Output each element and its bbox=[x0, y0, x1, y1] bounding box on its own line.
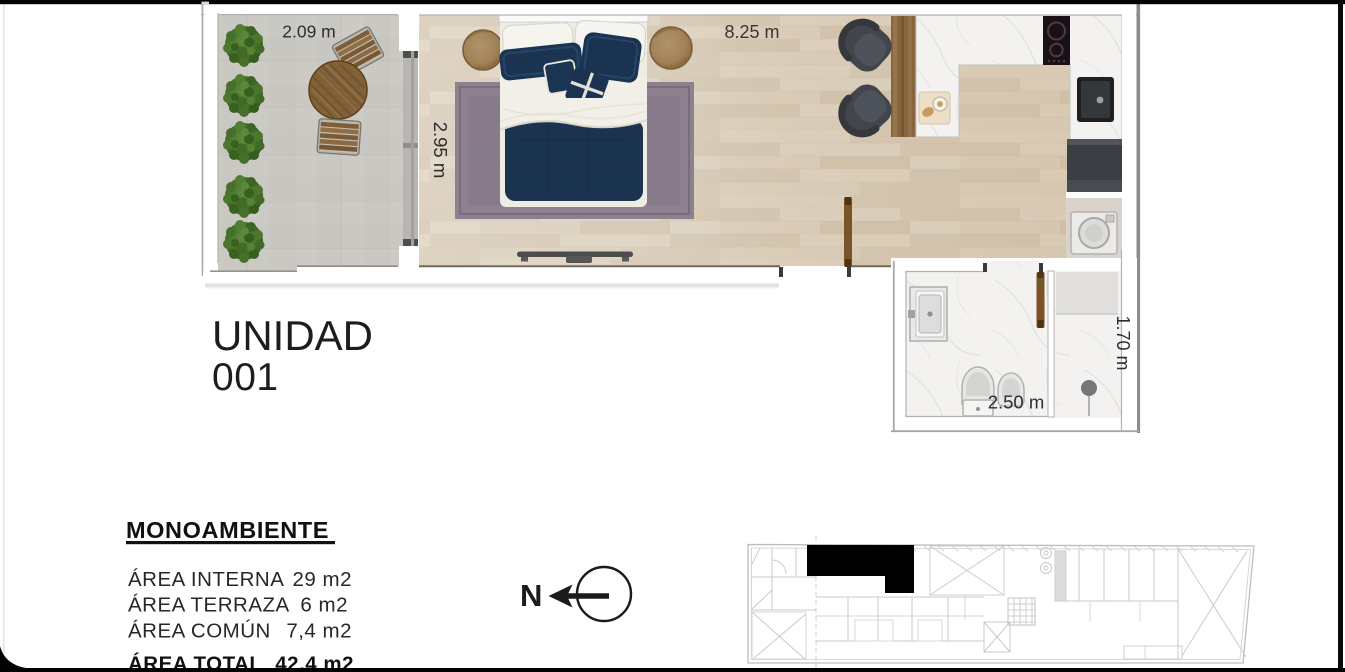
svg-text:8.25 m: 8.25 m bbox=[724, 22, 779, 42]
svg-text:2.95 m: 2.95 m bbox=[430, 122, 451, 179]
svg-text:2.09 m: 2.09 m bbox=[282, 22, 336, 42]
svg-text:ÁREA COMÚN: ÁREA COMÚN bbox=[128, 620, 271, 643]
svg-text:001: 001 bbox=[212, 356, 279, 399]
svg-text:N: N bbox=[520, 578, 542, 613]
svg-text:1.70 m: 1.70 m bbox=[1113, 315, 1133, 370]
svg-text:ÁREA TERRAZA: ÁREA TERRAZA bbox=[128, 594, 290, 617]
svg-text:UNIDAD: UNIDAD bbox=[212, 312, 373, 359]
svg-text:ÁREA INTERNA: ÁREA INTERNA bbox=[128, 568, 284, 591]
svg-text:29 m2: 29 m2 bbox=[293, 568, 352, 591]
svg-text:6 m2: 6 m2 bbox=[300, 594, 348, 617]
svg-text:2.50 m: 2.50 m bbox=[988, 392, 1045, 413]
svg-text:MONOAMBIENTE: MONOAMBIENTE bbox=[126, 517, 329, 543]
svg-text:7,4 m2: 7,4 m2 bbox=[286, 620, 352, 643]
